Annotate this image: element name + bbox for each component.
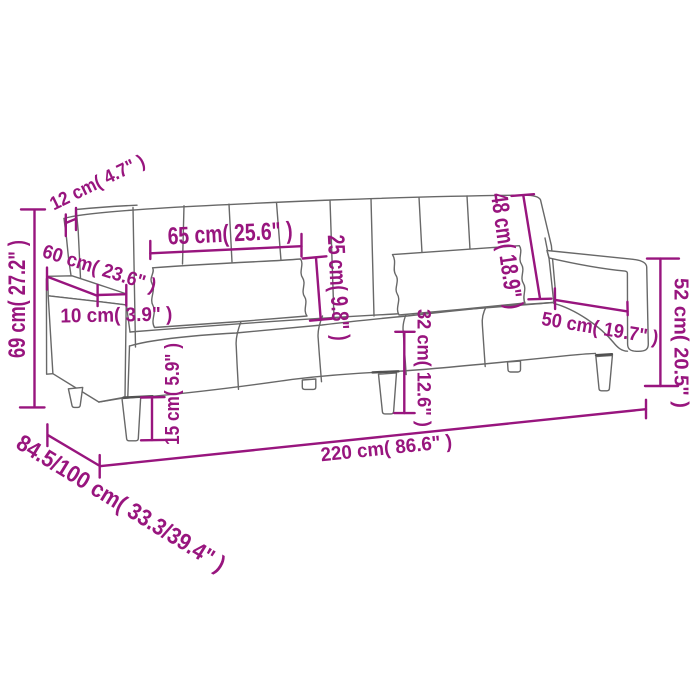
svg-text:10 cm( 3.9" ): 10 cm( 3.9" ) — [60, 304, 172, 328]
svg-text:32 cm( 12.6" ): 32 cm( 12.6" ) — [413, 309, 435, 427]
svg-text:52 cm( 20.5" ): 52 cm( 20.5" ) — [670, 278, 692, 408]
svg-text:69 cm( 27.2" ): 69 cm( 27.2" ) — [4, 240, 31, 358]
svg-text:25 cm( 9.8" ): 25 cm( 9.8" ) — [322, 234, 355, 341]
svg-text:15 cm( 5.9" ): 15 cm( 5.9" ) — [161, 343, 184, 445]
